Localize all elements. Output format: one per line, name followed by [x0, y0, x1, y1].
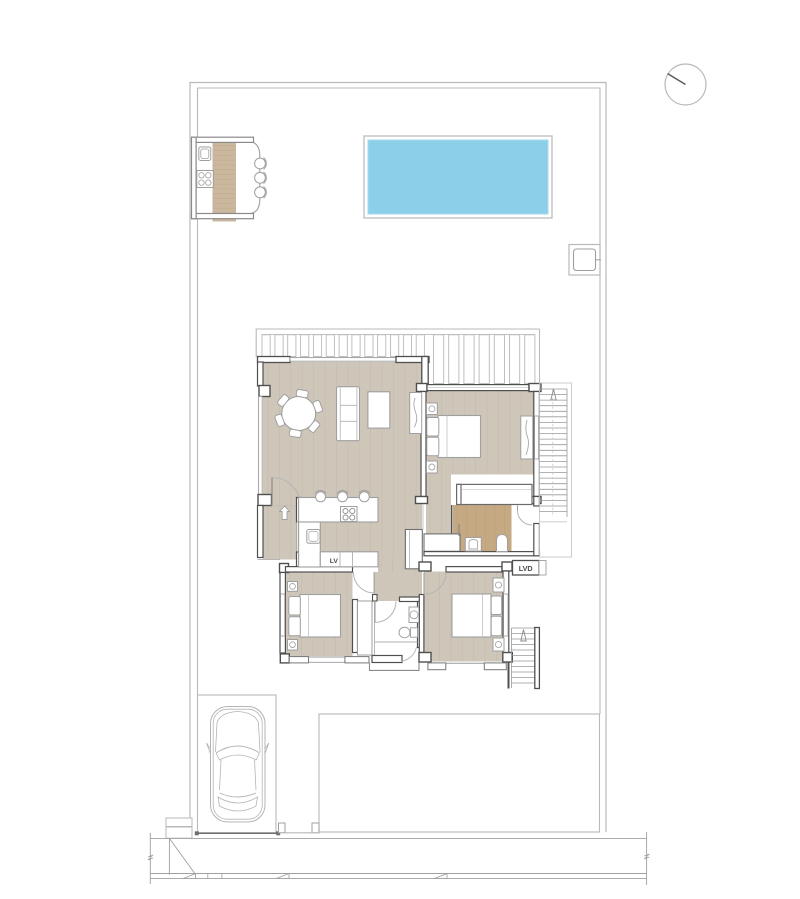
svg-text:LV: LV	[330, 558, 339, 565]
svg-text:LVD: LVD	[519, 564, 533, 573]
